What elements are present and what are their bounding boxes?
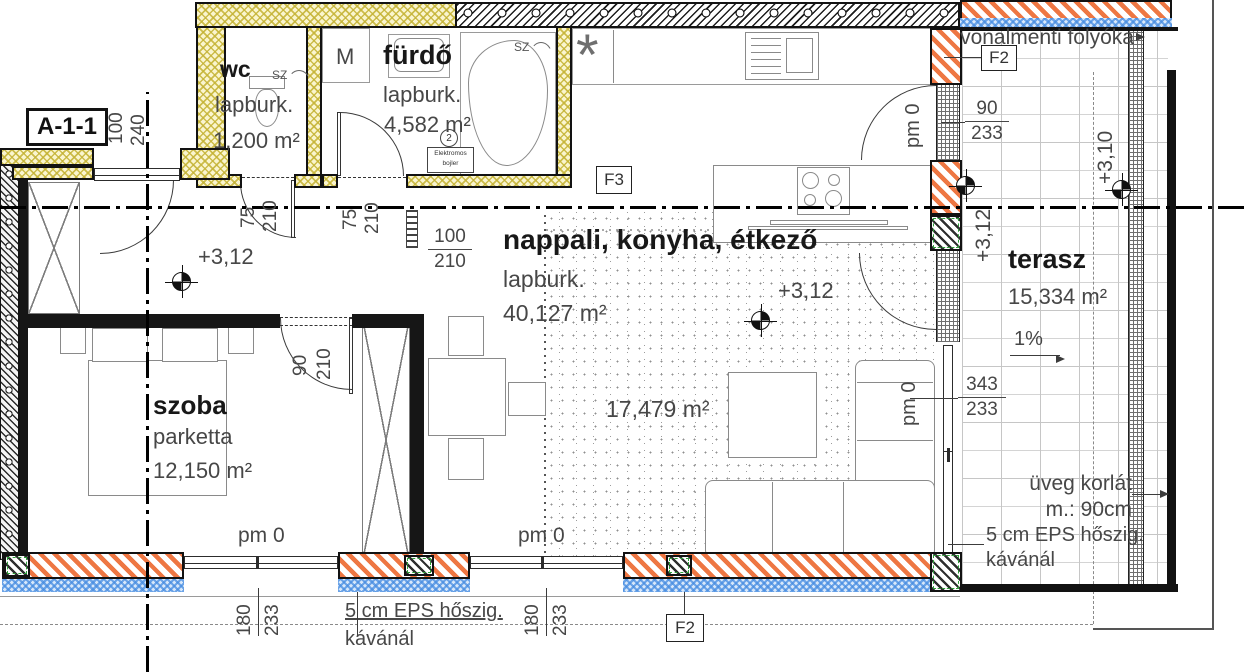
vent-sz-wc: SZ xyxy=(272,68,287,82)
sofa-line-3 xyxy=(772,482,773,556)
drain-arrow xyxy=(1136,33,1145,41)
dim-bath-door-height: 210 xyxy=(362,186,384,234)
dim-east-door-bar xyxy=(965,121,1009,122)
section-line-horizontal xyxy=(0,206,1245,209)
eps-bottom-line2: kávánál xyxy=(345,628,414,651)
wall-top-brick xyxy=(195,2,457,28)
level-terrace-inner-text: +3,12 xyxy=(972,198,996,262)
sink-basin xyxy=(786,38,813,73)
dim-east-door: 90 233 xyxy=(965,98,1009,145)
dim-window1-height: 233 xyxy=(262,590,284,636)
tag-f3-label: F3 xyxy=(604,170,624,190)
vent-sz-bath: SZ xyxy=(514,40,529,54)
wall-terrace-top xyxy=(960,0,1172,18)
wall-entry-jog-2 xyxy=(12,166,94,180)
room-nappali-area2: 17,479 m² xyxy=(606,396,710,423)
dim-pass-height: 210 xyxy=(434,251,466,273)
column-bottom-left xyxy=(4,554,30,577)
dim-window1-width: 180 xyxy=(234,590,256,636)
dim-extension-line xyxy=(0,596,960,597)
sofa-line-4 xyxy=(843,482,844,556)
railing-arrow-head xyxy=(1160,490,1169,498)
dim-window2-height: 233 xyxy=(550,590,572,636)
level-marker-terrace-inner xyxy=(956,176,975,195)
window-szoba-post xyxy=(256,556,259,569)
eps-terrace-line1: 5 cm EPS hőszig. xyxy=(986,524,1144,547)
eps-bottom-line1: 5 cm EPS hőszig. xyxy=(345,600,503,623)
insulation-bottom-left xyxy=(2,579,184,592)
dim-east-door-width: 90 xyxy=(976,98,997,120)
dim-slider-height: 233 xyxy=(966,399,998,421)
chair-right xyxy=(508,382,546,416)
room-terasz-area: 15,334 m² xyxy=(1008,284,1107,310)
room-szoba-finish: parketta xyxy=(153,424,233,450)
chair-top xyxy=(448,316,484,356)
dim-bath-door-width: 75 xyxy=(340,190,362,230)
chair-bottom xyxy=(448,438,484,480)
room-wc-area: 1,200 m² xyxy=(213,128,300,154)
level-living-text: +3,12 xyxy=(778,278,834,304)
burner-1 xyxy=(802,172,819,189)
wall-wc-bottom-b xyxy=(294,174,322,188)
dim-slider-bar xyxy=(958,397,1006,398)
dim-slider: 343 233 xyxy=(958,374,1006,421)
dim-szoba-door-width: 90 xyxy=(290,334,312,376)
eps-terrace-line2: kávánál xyxy=(986,549,1055,572)
bath-door-opening-dash xyxy=(338,177,406,178)
room-terasz-name: terasz xyxy=(1008,244,1086,275)
column-bottom-pier xyxy=(404,555,434,576)
room-nappali-name: nappali, konyha, étkező xyxy=(503,224,817,256)
wall-entry-jog-1 xyxy=(0,148,94,166)
entry-door-threshold xyxy=(94,168,180,181)
pm-east-door: pm 0 xyxy=(902,96,925,148)
column-se-corner xyxy=(930,552,962,592)
shaft-szoba xyxy=(362,320,410,560)
wall-szoba-top-b xyxy=(352,314,412,328)
room-furdo-finish: lapburk. xyxy=(383,82,461,108)
sliding-door-split xyxy=(947,448,950,462)
insulation-spring-symbol xyxy=(406,210,418,248)
dim-slider-width: 343 xyxy=(966,374,998,396)
room-furdo-area: 4,582 m² xyxy=(384,112,471,138)
dim-east-door-height: 233 xyxy=(971,123,1003,145)
dim-wc-door-width: 75 xyxy=(238,188,260,228)
insulation-bottom-pier xyxy=(338,579,470,592)
wall-szoba-top-a xyxy=(28,314,280,328)
room-wc-name: wc xyxy=(220,56,251,83)
window-nappali-post xyxy=(541,556,544,569)
window-szoba xyxy=(184,556,338,569)
section-line-vertical xyxy=(146,92,149,672)
kitchen-counter-divider xyxy=(613,30,614,83)
room-szoba-name: szoba xyxy=(153,390,227,421)
tag-f2-bottom-leader xyxy=(684,592,685,614)
wall-west-existing xyxy=(0,165,20,560)
east-window-frame xyxy=(936,251,960,342)
coffee-table xyxy=(728,372,817,458)
outer-boundary-bottom xyxy=(1093,628,1214,630)
tag-f2-top-leader xyxy=(944,57,982,58)
level-marker-hall xyxy=(172,272,191,291)
section-mark: A-1-1 xyxy=(26,108,108,146)
pm-window1: pm 0 xyxy=(238,524,285,548)
dim-east-door-leader xyxy=(941,122,965,123)
nightstand-left xyxy=(60,326,86,354)
burner-3 xyxy=(804,194,816,206)
pm-window2: pm 0 xyxy=(518,524,565,548)
dim-pass: 100 210 xyxy=(428,226,472,273)
tag-f2-bottom: F2 xyxy=(666,614,704,642)
dim-pass-bar xyxy=(428,249,472,250)
level-marker-living xyxy=(751,311,770,330)
burner-4 xyxy=(825,190,842,207)
wall-mid-vertical xyxy=(410,314,424,560)
dim-pass-width: 100 xyxy=(434,226,466,248)
glass-railing xyxy=(1167,70,1176,588)
wall-bath-right xyxy=(556,26,572,178)
eps-bottom-leader xyxy=(357,592,358,636)
dim-window1-bar xyxy=(258,588,259,636)
washing-machine-label: M xyxy=(336,44,354,70)
room-wc-finish: lapburk. xyxy=(215,92,293,118)
boiler-label-line1: Elektromos xyxy=(427,149,474,159)
column-bottom-mid xyxy=(666,555,692,576)
nightstand-right xyxy=(228,326,254,354)
tag-f2-bottom-label: F2 xyxy=(675,618,695,638)
insulation-bottom-right xyxy=(623,579,962,592)
room-nappali-finish: lapburk. xyxy=(503,266,585,293)
room-nappali-area: 40,127 m² xyxy=(503,300,607,327)
sofa-line-1 xyxy=(857,382,933,383)
terasz-slope-arrow-head xyxy=(1056,355,1065,363)
level-hall-text: +3,12 xyxy=(198,244,254,270)
outer-boundary-right xyxy=(1212,0,1214,630)
tag-f3: F3 xyxy=(596,166,632,194)
tag-f2-top-label: F2 xyxy=(989,48,1009,68)
window-nappali xyxy=(470,556,623,569)
terasz-slope-arrow-line xyxy=(1010,355,1060,356)
dim-wc-door-height: 210 xyxy=(260,184,282,232)
entry-door-swing xyxy=(100,180,174,254)
dim-entry-height: 240 xyxy=(128,94,150,146)
room-furdo-name: fürdő xyxy=(383,40,452,71)
dim-entry-width: 100 xyxy=(106,96,128,144)
wall-top-concrete xyxy=(455,2,960,28)
boiler-label: Elektromos bojler xyxy=(427,149,474,169)
terrace-bottom-edge xyxy=(962,584,1178,592)
wall-wc-right xyxy=(306,26,322,178)
railing-note-line2: m.: 90cm xyxy=(1020,498,1132,522)
railing-note-line1: üveg korlát xyxy=(1020,472,1132,496)
eps-terrace-leader xyxy=(948,544,984,545)
wc-door-opening-dash xyxy=(242,177,294,178)
shaft-entry xyxy=(28,182,80,314)
pm-slider: pm 0 xyxy=(898,372,921,426)
pillow-right xyxy=(162,328,218,362)
dim-szoba-door-height: 210 xyxy=(314,332,336,380)
burner-2 xyxy=(828,174,840,186)
dim-window2-bar xyxy=(546,588,547,636)
sink-drainer xyxy=(751,38,781,74)
boiler-label-line2: bojler xyxy=(427,159,474,169)
level-terrace-outer-text: +3,10 xyxy=(1094,122,1118,184)
room-szoba-area: 12,150 m² xyxy=(153,458,252,484)
floor-plan: 2 A-1-1 F3 F2 F2 wc lapburk. 1,200 m² fü… xyxy=(0,0,1245,672)
section-mark-label: A-1-1 xyxy=(37,113,97,141)
column-east-1 xyxy=(930,215,962,251)
wall-bath-bottom-b xyxy=(406,174,572,188)
dim-window2-width: 180 xyxy=(522,590,544,636)
pillow-left xyxy=(92,328,148,362)
terasz-slope-label: 1% xyxy=(1014,328,1043,351)
szoba-door-opening-dash-2 xyxy=(280,325,352,326)
wall-west-inner xyxy=(20,168,28,558)
wall-bath-bottom-a xyxy=(322,174,338,188)
dining-table xyxy=(428,358,506,436)
sofa-seat xyxy=(705,480,935,558)
szoba-door-opening-dash-1 xyxy=(280,317,352,318)
sofa-line-2 xyxy=(857,440,933,441)
ceiling-symbol: * xyxy=(576,40,599,72)
drain-label: vonalmenti folyóka xyxy=(938,26,1134,50)
